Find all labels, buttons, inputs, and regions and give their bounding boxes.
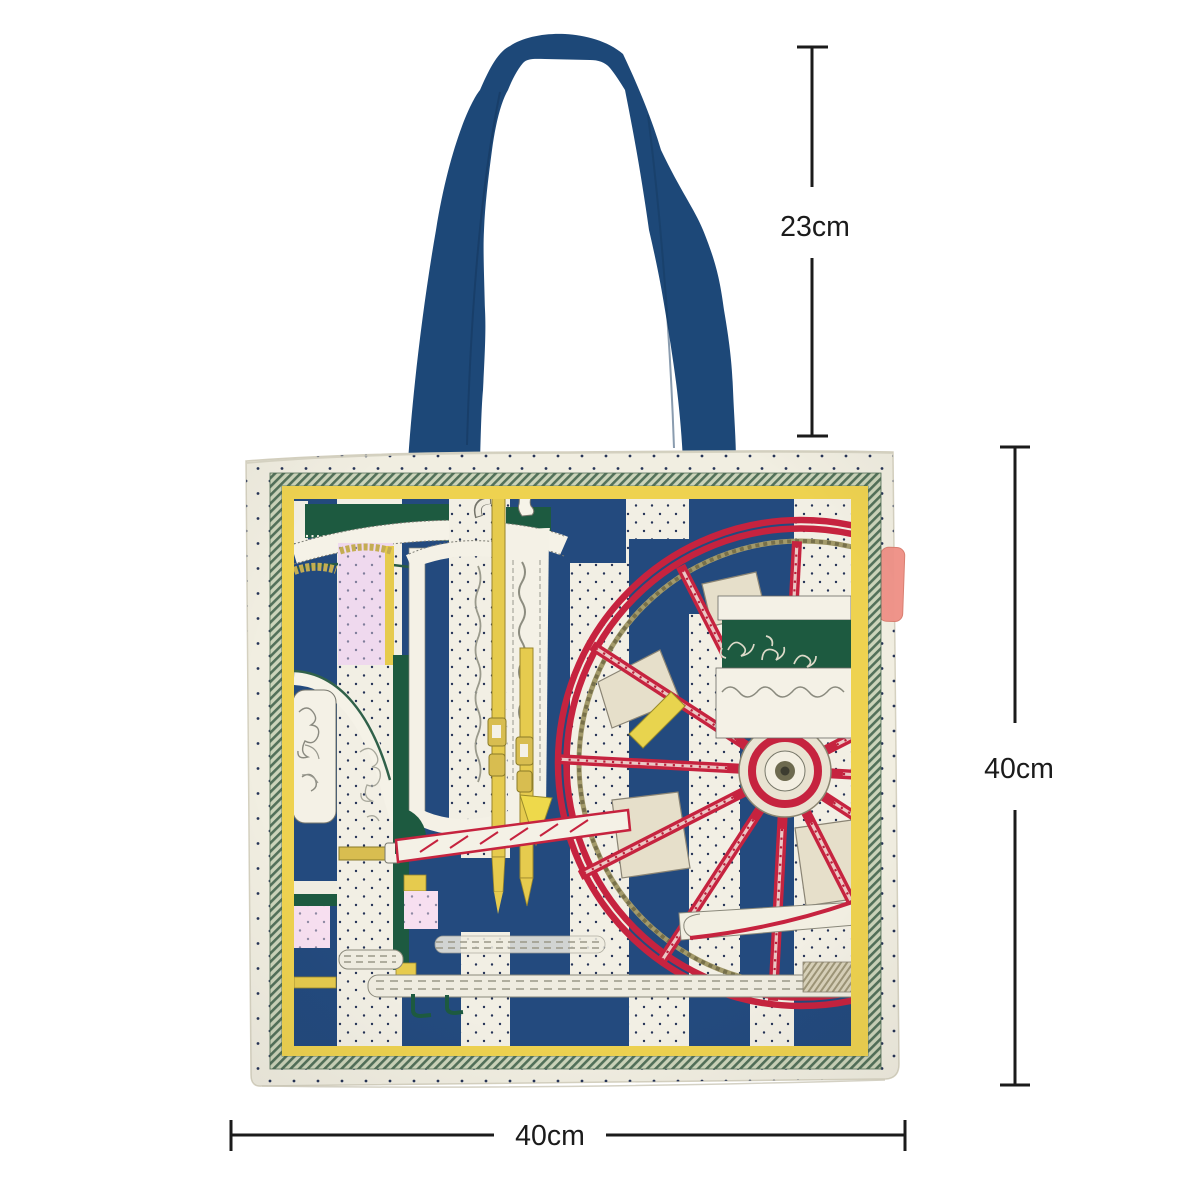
svg-text:23cm: 23cm [780, 211, 850, 243]
svg-text:40cm: 40cm [984, 753, 1054, 785]
svg-text:40cm: 40cm [515, 1120, 585, 1152]
